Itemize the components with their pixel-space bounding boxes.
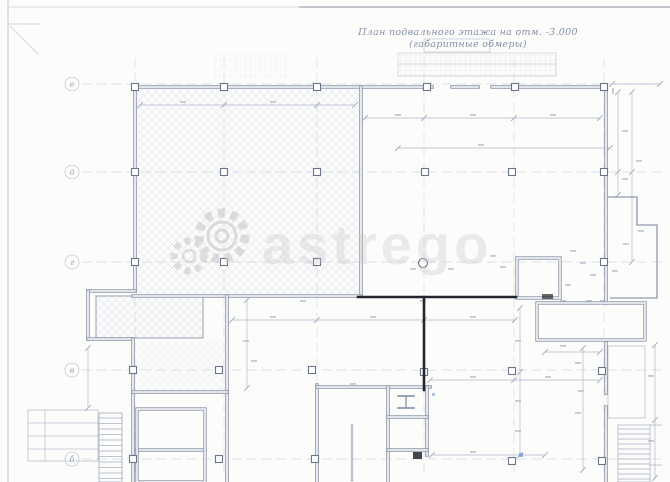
grid-axis-bubble: д <box>65 165 79 179</box>
grid-axis-bubble: е <box>65 77 79 91</box>
grid-axis-bubbles: е д г в б <box>65 77 79 466</box>
grid-axis-label: г <box>70 258 74 267</box>
floor-plan-canvas: е д г в б План подвального этажа на отм.… <box>0 0 670 482</box>
grid-axis-label: е <box>70 80 75 89</box>
grid-axis-label: в <box>70 366 75 375</box>
blueprint-sheet: е д г в б План подвального этажа на отм.… <box>0 0 670 482</box>
grid-axis-bubble: б <box>65 452 79 466</box>
watermark-text: astrego <box>262 213 492 276</box>
drawing-title: План подвального этажа на отм. -3.000 (г… <box>357 27 578 50</box>
grid-axis-label: б <box>70 455 75 464</box>
grid-axis-label: д <box>69 168 74 177</box>
plan-title-line1: План подвального этажа на отм. -3.000 <box>357 27 578 38</box>
grid-axis-bubble: г <box>65 255 79 269</box>
grid-axis-bubble: в <box>65 363 79 377</box>
plan-title-line2: (габаритные обмеры) <box>409 39 527 50</box>
